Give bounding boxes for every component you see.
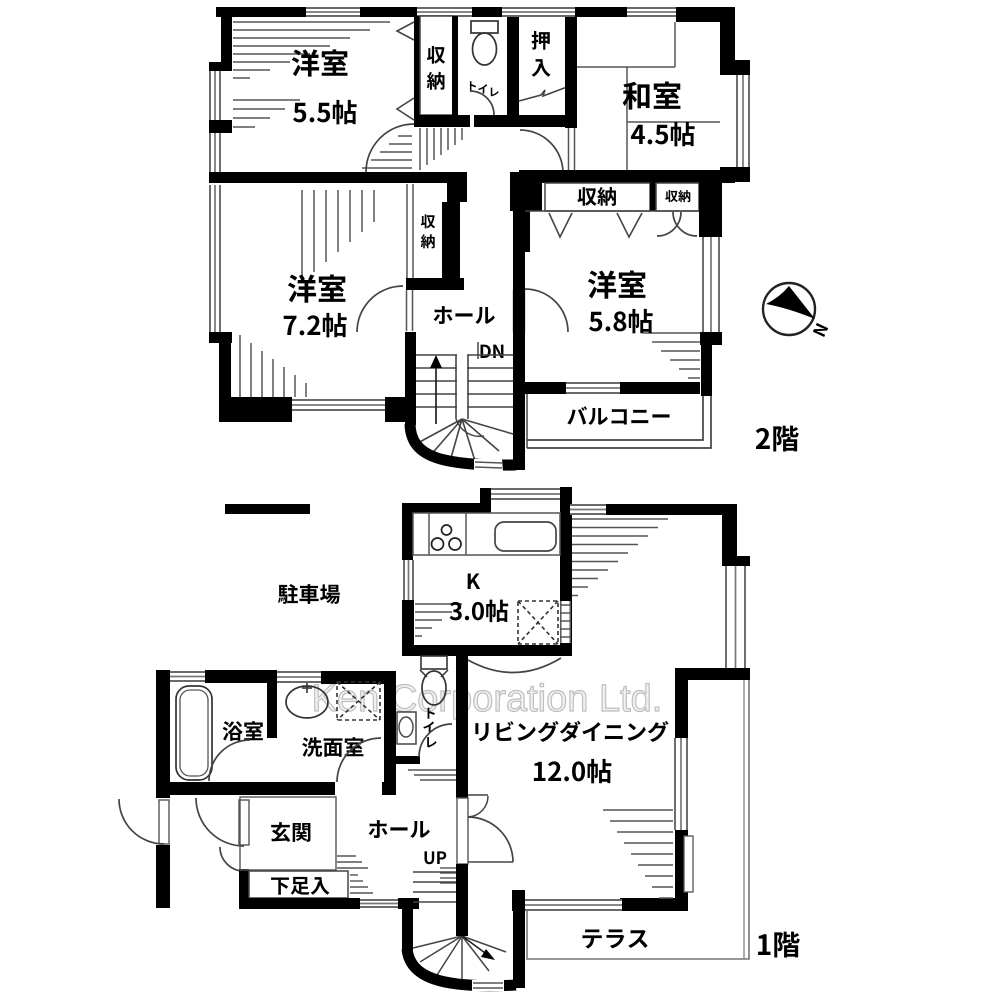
svg-text:洋室: 洋室 — [287, 265, 347, 309]
svg-text:収納: 収納 — [665, 186, 691, 205]
svg-text:収: 収 — [420, 211, 435, 232]
svg-text:5.5帖: 5.5帖 — [292, 93, 357, 130]
svg-text:浴室: 浴室 — [222, 716, 264, 746]
svg-text:納: 納 — [420, 231, 435, 252]
svg-text:バルコニー: バルコニー — [567, 401, 672, 431]
svg-text:テラス: テラス — [581, 920, 650, 954]
svg-text:DN: DN — [479, 338, 505, 364]
svg-text:2階: 2階 — [755, 418, 800, 458]
svg-text:収納: 収納 — [577, 181, 617, 210]
svg-text:駐車場: 駐車場 — [278, 579, 341, 609]
svg-text:押: 押 — [531, 25, 551, 54]
svg-text:入: 入 — [531, 52, 551, 81]
svg-text:収: 収 — [426, 41, 445, 68]
svg-text:4.5帖: 4.5帖 — [630, 115, 695, 152]
svg-text:3.0帖: 3.0帖 — [449, 592, 509, 627]
svg-text:7.2帖: 7.2帖 — [282, 306, 347, 343]
svg-text:12.0帖: 12.0帖 — [532, 752, 612, 789]
svg-text:洋室: 洋室 — [587, 261, 647, 305]
svg-text:洋室: 洋室 — [291, 41, 349, 83]
svg-text:5.8帖: 5.8帖 — [588, 302, 653, 339]
svg-text:和室: 和室 — [622, 72, 682, 116]
svg-text:下足入: 下足入 — [270, 870, 330, 899]
svg-text:ホール: ホール — [368, 814, 431, 844]
svg-text:レ: レ — [489, 84, 500, 100]
svg-text:1階: 1階 — [756, 924, 801, 964]
svg-text:玄関: 玄関 — [270, 817, 312, 847]
svg-text:UP: UP — [423, 844, 447, 869]
svg-text:ホール: ホール — [433, 300, 496, 330]
svg-text:納: 納 — [426, 67, 445, 94]
svg-text:Ken Corporation Ltd.: Ken Corporation Ltd. — [312, 678, 663, 720]
